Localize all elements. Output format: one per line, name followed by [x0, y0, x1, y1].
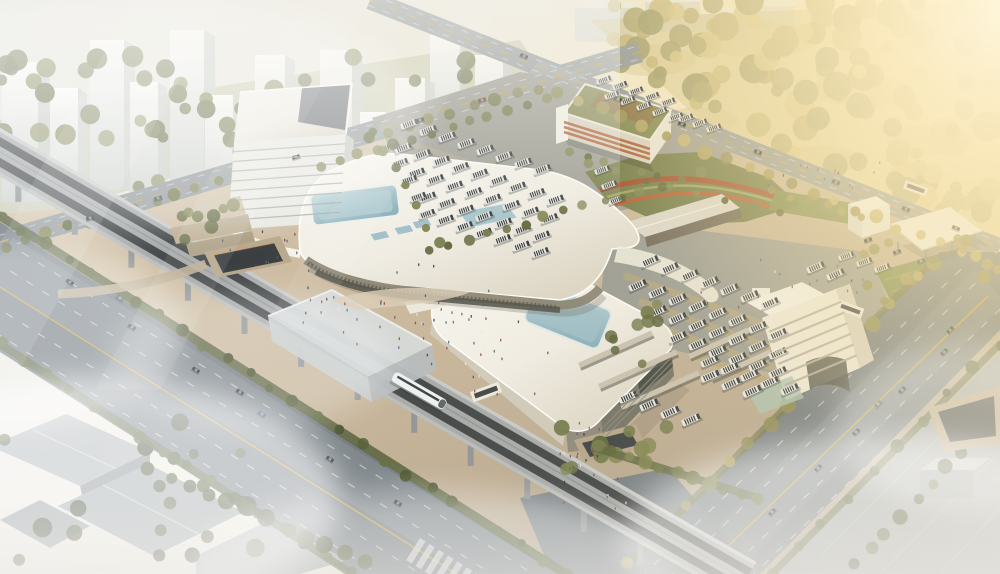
- bottom-haze: [0, 500, 1000, 574]
- scene-svg: [0, 0, 1000, 574]
- aerial-rendering-canvas: [0, 0, 1000, 574]
